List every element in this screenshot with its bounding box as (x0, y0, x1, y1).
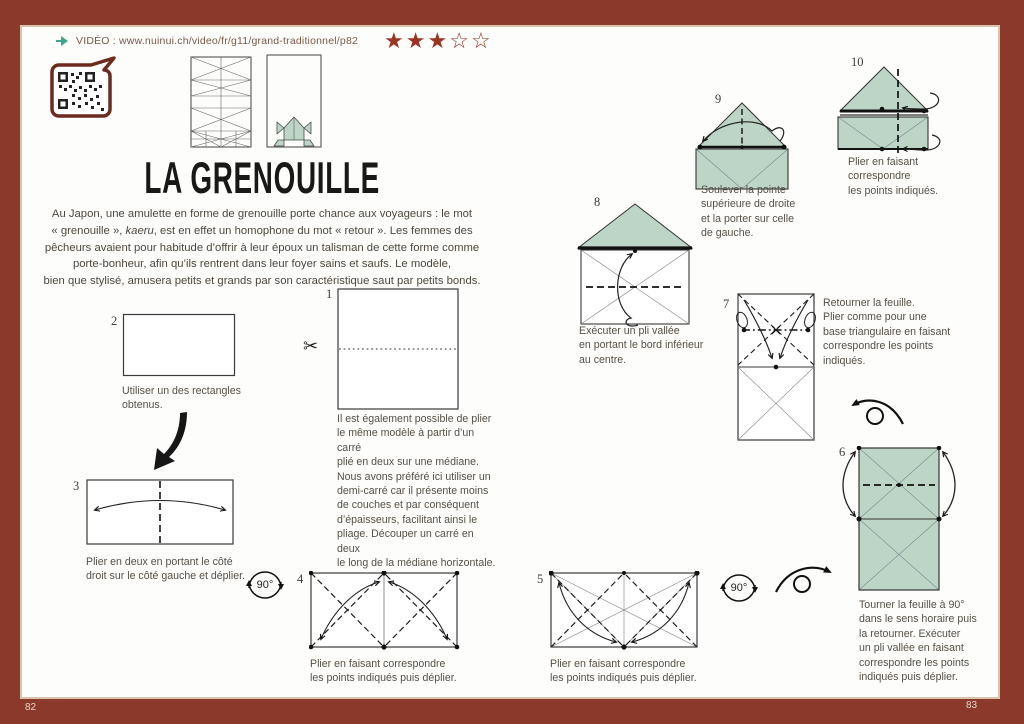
rotate-90-label: 90° (240, 560, 290, 610)
page-number-left: 82 (25, 702, 36, 713)
step-3-number: 3 (73, 479, 79, 494)
flip-over-icon (843, 388, 907, 436)
star-icon: ☆ (471, 28, 493, 53)
step-2-number: 2 (111, 314, 117, 329)
step-5-caption: Plier en faisant correspondre les points… (550, 657, 720, 686)
folded-model-thumbnail (266, 54, 322, 148)
star-rating: ★★★☆☆ (384, 28, 493, 54)
star-icon: ★ (406, 28, 428, 53)
step-10-diagram (836, 61, 950, 159)
video-label: VIDÉO : www.nuinui.ch/video/fr/g11/grand… (76, 35, 358, 47)
step-6-diagram (836, 446, 962, 594)
flip-over-icon (772, 554, 846, 606)
step-1-caption: Il est également possible de plier le mê… (337, 412, 497, 570)
step-7-number: 7 (723, 297, 729, 312)
page-number-right: 83 (966, 700, 977, 711)
page-title: LA GRENOUILLE (144, 153, 379, 204)
rotate-90-icon: 90° (240, 560, 290, 610)
step-8-caption: Exécuter un pli vallée en portant le bor… (579, 324, 759, 367)
step-9-caption: Soulever la pointe supérieure de droite … (701, 183, 841, 241)
intro-paragraph: Au Japon, une amulette en forme de greno… (38, 206, 486, 290)
step-7-diagram (736, 292, 818, 444)
star-icon: ★ (427, 28, 449, 53)
crease-pattern-thumbnail (190, 56, 252, 148)
step-7-caption: Retourner la feuille. Plier comme pour u… (823, 296, 973, 368)
page-title-wrap: LA GRENOUILLE (22, 155, 502, 202)
video-arrow-icon (55, 34, 70, 48)
step-2-caption: Utiliser un des rectangles obtenus. (122, 384, 272, 413)
step-8-diagram (576, 201, 696, 329)
intro-italic: kaeru (126, 225, 154, 237)
step-2-diagram (122, 313, 237, 379)
down-arrow-icon (147, 410, 199, 472)
step-4-diagram (309, 571, 461, 651)
step-1-diagram (336, 287, 462, 413)
step-4-caption: Plier en faisant correspondre les points… (310, 657, 480, 686)
step-6-caption: Tourner la feuille à 90° dans le sens ho… (859, 598, 1019, 684)
star-icon: ☆ (449, 28, 471, 53)
page: VIDÉO : www.nuinui.ch/video/fr/g11/grand… (22, 27, 998, 697)
step-1-number: 1 (326, 287, 332, 302)
video-link: VIDÉO : www.nuinui.ch/video/fr/g11/grand… (55, 34, 358, 48)
book-spread: { "page": { "title": "LA GRENOUILLE", "l… (0, 0, 1024, 724)
step-5-number: 5 (537, 572, 543, 587)
step-4-number: 4 (297, 572, 303, 587)
step-3-diagram (85, 478, 235, 548)
rotate-90-icon: 90° (714, 563, 764, 613)
qr-code-bubble (45, 55, 121, 121)
star-icon: ★ (384, 28, 406, 53)
step-5-diagram (549, 571, 701, 651)
step-9-diagram (690, 97, 798, 193)
step-10-caption: Plier en faisant correspondre les points… (848, 155, 978, 198)
rotate-90-label: 90° (714, 563, 764, 613)
scissors-icon: ✂ (303, 336, 318, 357)
